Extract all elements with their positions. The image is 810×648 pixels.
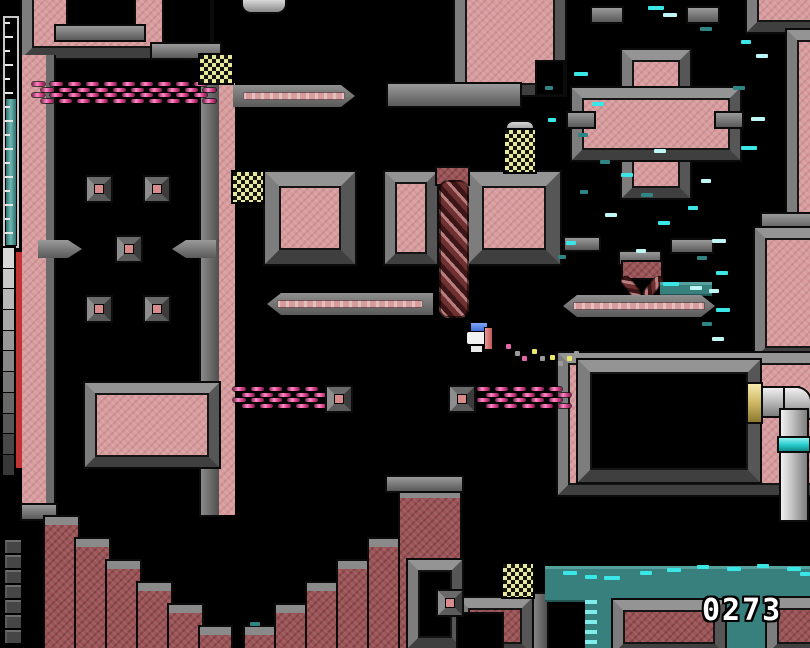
meter-segment (3, 269, 14, 290)
gauge-tick (5, 36, 13, 38)
chain-fence-link (296, 393, 309, 397)
rope-braid (439, 180, 469, 318)
stair (138, 583, 171, 648)
drip-particle (548, 118, 556, 122)
meter-segment (3, 248, 14, 269)
drip-particle (701, 179, 711, 183)
chain-fence-link (477, 398, 490, 402)
ceiling-notch (164, 0, 210, 44)
rounded-stone (243, 0, 285, 12)
chain-fence-link (68, 82, 81, 86)
brick (5, 615, 21, 628)
checker-block (505, 130, 535, 172)
drip-particle (702, 322, 712, 326)
chain-fence-link (269, 398, 282, 402)
gauge-tick (5, 120, 13, 122)
drip-particle (741, 146, 757, 150)
pipe-coupling-gold (748, 384, 761, 422)
ceiling-notch (68, 0, 134, 26)
brick (5, 540, 21, 553)
meter-segment (3, 372, 14, 393)
chain-fence-link (167, 88, 180, 92)
gauge-tick (5, 106, 10, 108)
ledge (56, 26, 144, 40)
chain-fence-link (59, 88, 72, 92)
chain-fence-link (149, 99, 162, 103)
chain-fence-link (540, 393, 553, 397)
ledge (387, 477, 462, 491)
chain-fence-link (477, 387, 490, 391)
diamond-block (143, 175, 171, 203)
thin-platform (233, 85, 355, 107)
chain-fence-link (251, 398, 264, 402)
gauge-tick (5, 176, 13, 178)
block (468, 172, 560, 264)
thin-platform (563, 295, 715, 317)
meter-segment (3, 455, 14, 476)
chain-fence-link (314, 393, 327, 397)
player-sprite (465, 322, 501, 356)
rounded-stone (507, 122, 533, 132)
meter-segment (3, 310, 14, 331)
meter-segment (3, 289, 14, 310)
brick (5, 555, 21, 568)
brick (5, 630, 21, 643)
drip-particle (756, 54, 768, 58)
gauge-tick (5, 50, 10, 52)
energy-gauge (3, 16, 19, 248)
chain-fence-link (287, 398, 300, 402)
chain-fence-link (504, 404, 517, 408)
drip-particle (648, 6, 664, 10)
diamond-block (85, 175, 113, 203)
ledge (152, 44, 220, 58)
chain-fence-link (131, 88, 144, 92)
pipe-band-cyan (779, 438, 809, 451)
chain-fence-link (495, 387, 508, 391)
gauge-tick (5, 190, 10, 192)
gauge-tick (5, 78, 10, 80)
diamond-block (115, 235, 143, 263)
puddle (660, 282, 712, 296)
gauge-tick (5, 92, 13, 94)
chain-fence-link (278, 404, 291, 408)
waterfall (585, 600, 615, 648)
drip-particle (712, 239, 726, 243)
chain-fence-link (278, 393, 291, 397)
ledge (672, 240, 712, 252)
gauge-tick (5, 134, 10, 136)
gauge-tick (5, 204, 13, 206)
ledge (565, 238, 599, 250)
player-pack (484, 327, 493, 350)
chain-fence-link (59, 99, 72, 103)
meter-segment (3, 414, 14, 435)
window-opening (408, 560, 462, 648)
chain-fence-link (513, 387, 526, 391)
gauge-tick (5, 22, 10, 24)
chain-fence-link (77, 88, 90, 92)
stair (169, 605, 202, 648)
diamond-block (325, 385, 353, 413)
chain-fence-link (104, 93, 117, 97)
meter-segment (3, 434, 14, 455)
wall-top-right-corner (747, 0, 810, 32)
chain-fence-link (113, 88, 126, 92)
stair (107, 561, 140, 648)
inner-platform (85, 383, 219, 467)
chain-fence-link (176, 82, 189, 86)
ledge (172, 240, 216, 258)
chain-fence-link (77, 99, 90, 103)
brick-stack (5, 540, 21, 648)
drip-particle (700, 27, 712, 31)
ledge (716, 113, 742, 127)
chain-fence-link (269, 387, 282, 391)
gauge-tick (5, 162, 10, 164)
drip-particle (658, 221, 670, 225)
drip-particle (716, 271, 728, 275)
wall-channel (537, 62, 563, 94)
thin-platform (267, 293, 433, 315)
ledge (568, 113, 594, 127)
stair (76, 539, 109, 648)
drip-particle (712, 337, 724, 341)
drip-particle (741, 40, 751, 44)
diamond-block (85, 295, 113, 323)
stair (45, 517, 78, 648)
chain-fence-link (104, 82, 117, 86)
drip-particle (574, 72, 588, 76)
gauge-tick (5, 218, 10, 220)
trail-dot (515, 351, 520, 356)
drip-particle (688, 206, 698, 210)
chain-fence-link (242, 393, 255, 397)
chain-fence-link (260, 404, 273, 408)
chain-fence-link (296, 404, 309, 408)
score-counter: 0273 (702, 593, 782, 628)
stair (338, 561, 371, 648)
chain-fence-link (122, 82, 135, 86)
chain-fence-link (260, 393, 273, 397)
chain-fence-link (242, 404, 255, 408)
chain-fence-link (149, 88, 162, 92)
chain-fence-link (95, 88, 108, 92)
chain-fence-link (95, 99, 108, 103)
drip-particle (605, 213, 617, 217)
drip-particle (751, 117, 765, 121)
drip-particle (250, 622, 260, 626)
drip-particle (663, 13, 677, 17)
stair (307, 583, 340, 648)
chain-fence-link (131, 99, 144, 103)
chain-fence-link (140, 82, 153, 86)
trail-dot (522, 356, 527, 361)
drip-particle (580, 190, 588, 194)
window-opening (458, 614, 502, 648)
checker-block (503, 564, 533, 597)
wall-left-column (22, 55, 54, 507)
chain-fence-link (158, 93, 171, 97)
chain-fence-link (531, 398, 544, 402)
chain-fence-link (158, 82, 171, 86)
chain-fence-link (287, 387, 300, 391)
ledge (592, 8, 622, 22)
stair (369, 539, 402, 648)
chain-fence-link (486, 404, 499, 408)
chain-fence-link (540, 404, 553, 408)
chain-fence-link (522, 393, 535, 397)
chain-fence-link (185, 88, 198, 92)
ledge (38, 240, 82, 258)
chain-fence-link (314, 404, 327, 408)
chain-fence-link (495, 398, 508, 402)
gray-meter (3, 248, 14, 476)
ledge (388, 84, 520, 106)
gauge-tick (5, 148, 13, 150)
chain-fence-link (113, 99, 126, 103)
brick (5, 585, 21, 598)
chain-fence-link (305, 398, 318, 402)
meter-segment (3, 351, 14, 372)
chain-fence-link (305, 387, 318, 391)
checker-block (200, 55, 232, 83)
chain-fence-link (122, 93, 135, 97)
meter-segment (3, 393, 14, 414)
trail-dot (540, 356, 545, 361)
gauge-tick (5, 232, 13, 234)
stair (200, 627, 231, 648)
window-opening (578, 360, 760, 482)
trail-dot (532, 349, 537, 354)
chain-fence-link (68, 93, 81, 97)
diamond-block (143, 295, 171, 323)
game-screen[interactable]: 0273 (0, 0, 810, 648)
chain-fence-link (185, 99, 198, 103)
chain-fence-link (167, 99, 180, 103)
stair (276, 605, 309, 648)
chain-fence-link (513, 398, 526, 402)
block (265, 172, 355, 264)
drip-particle (697, 256, 707, 260)
pipe-vertical (781, 410, 807, 520)
chain-fence-link (176, 93, 189, 97)
chain-fence-link (486, 393, 499, 397)
chain-fence-link (504, 393, 517, 397)
chain-fence-link (86, 93, 99, 97)
stair (245, 627, 278, 648)
wall-edge (533, 594, 547, 648)
wall-strip (219, 83, 235, 515)
trail-dot (550, 355, 555, 360)
block (385, 172, 437, 264)
wall-right-column (787, 30, 810, 230)
gauge-tick (5, 64, 13, 66)
player-body (470, 345, 483, 353)
brick (5, 570, 21, 583)
wall-right-mid (755, 228, 810, 358)
meter-segment (3, 331, 14, 352)
trail-dot (506, 344, 511, 349)
brick (5, 600, 21, 613)
diamond-block (448, 385, 476, 413)
checker-block (233, 172, 263, 202)
ledge (688, 8, 718, 22)
chain-fence-link (531, 387, 544, 391)
chain-fence-link (86, 82, 99, 86)
chain-fence-link (140, 93, 153, 97)
chain-fence-link (251, 387, 264, 391)
player-face (466, 331, 485, 345)
drip-particle (600, 160, 610, 164)
cross-horizontal (572, 88, 740, 160)
chain-fence-link (522, 404, 535, 408)
drip-particle (716, 308, 730, 312)
